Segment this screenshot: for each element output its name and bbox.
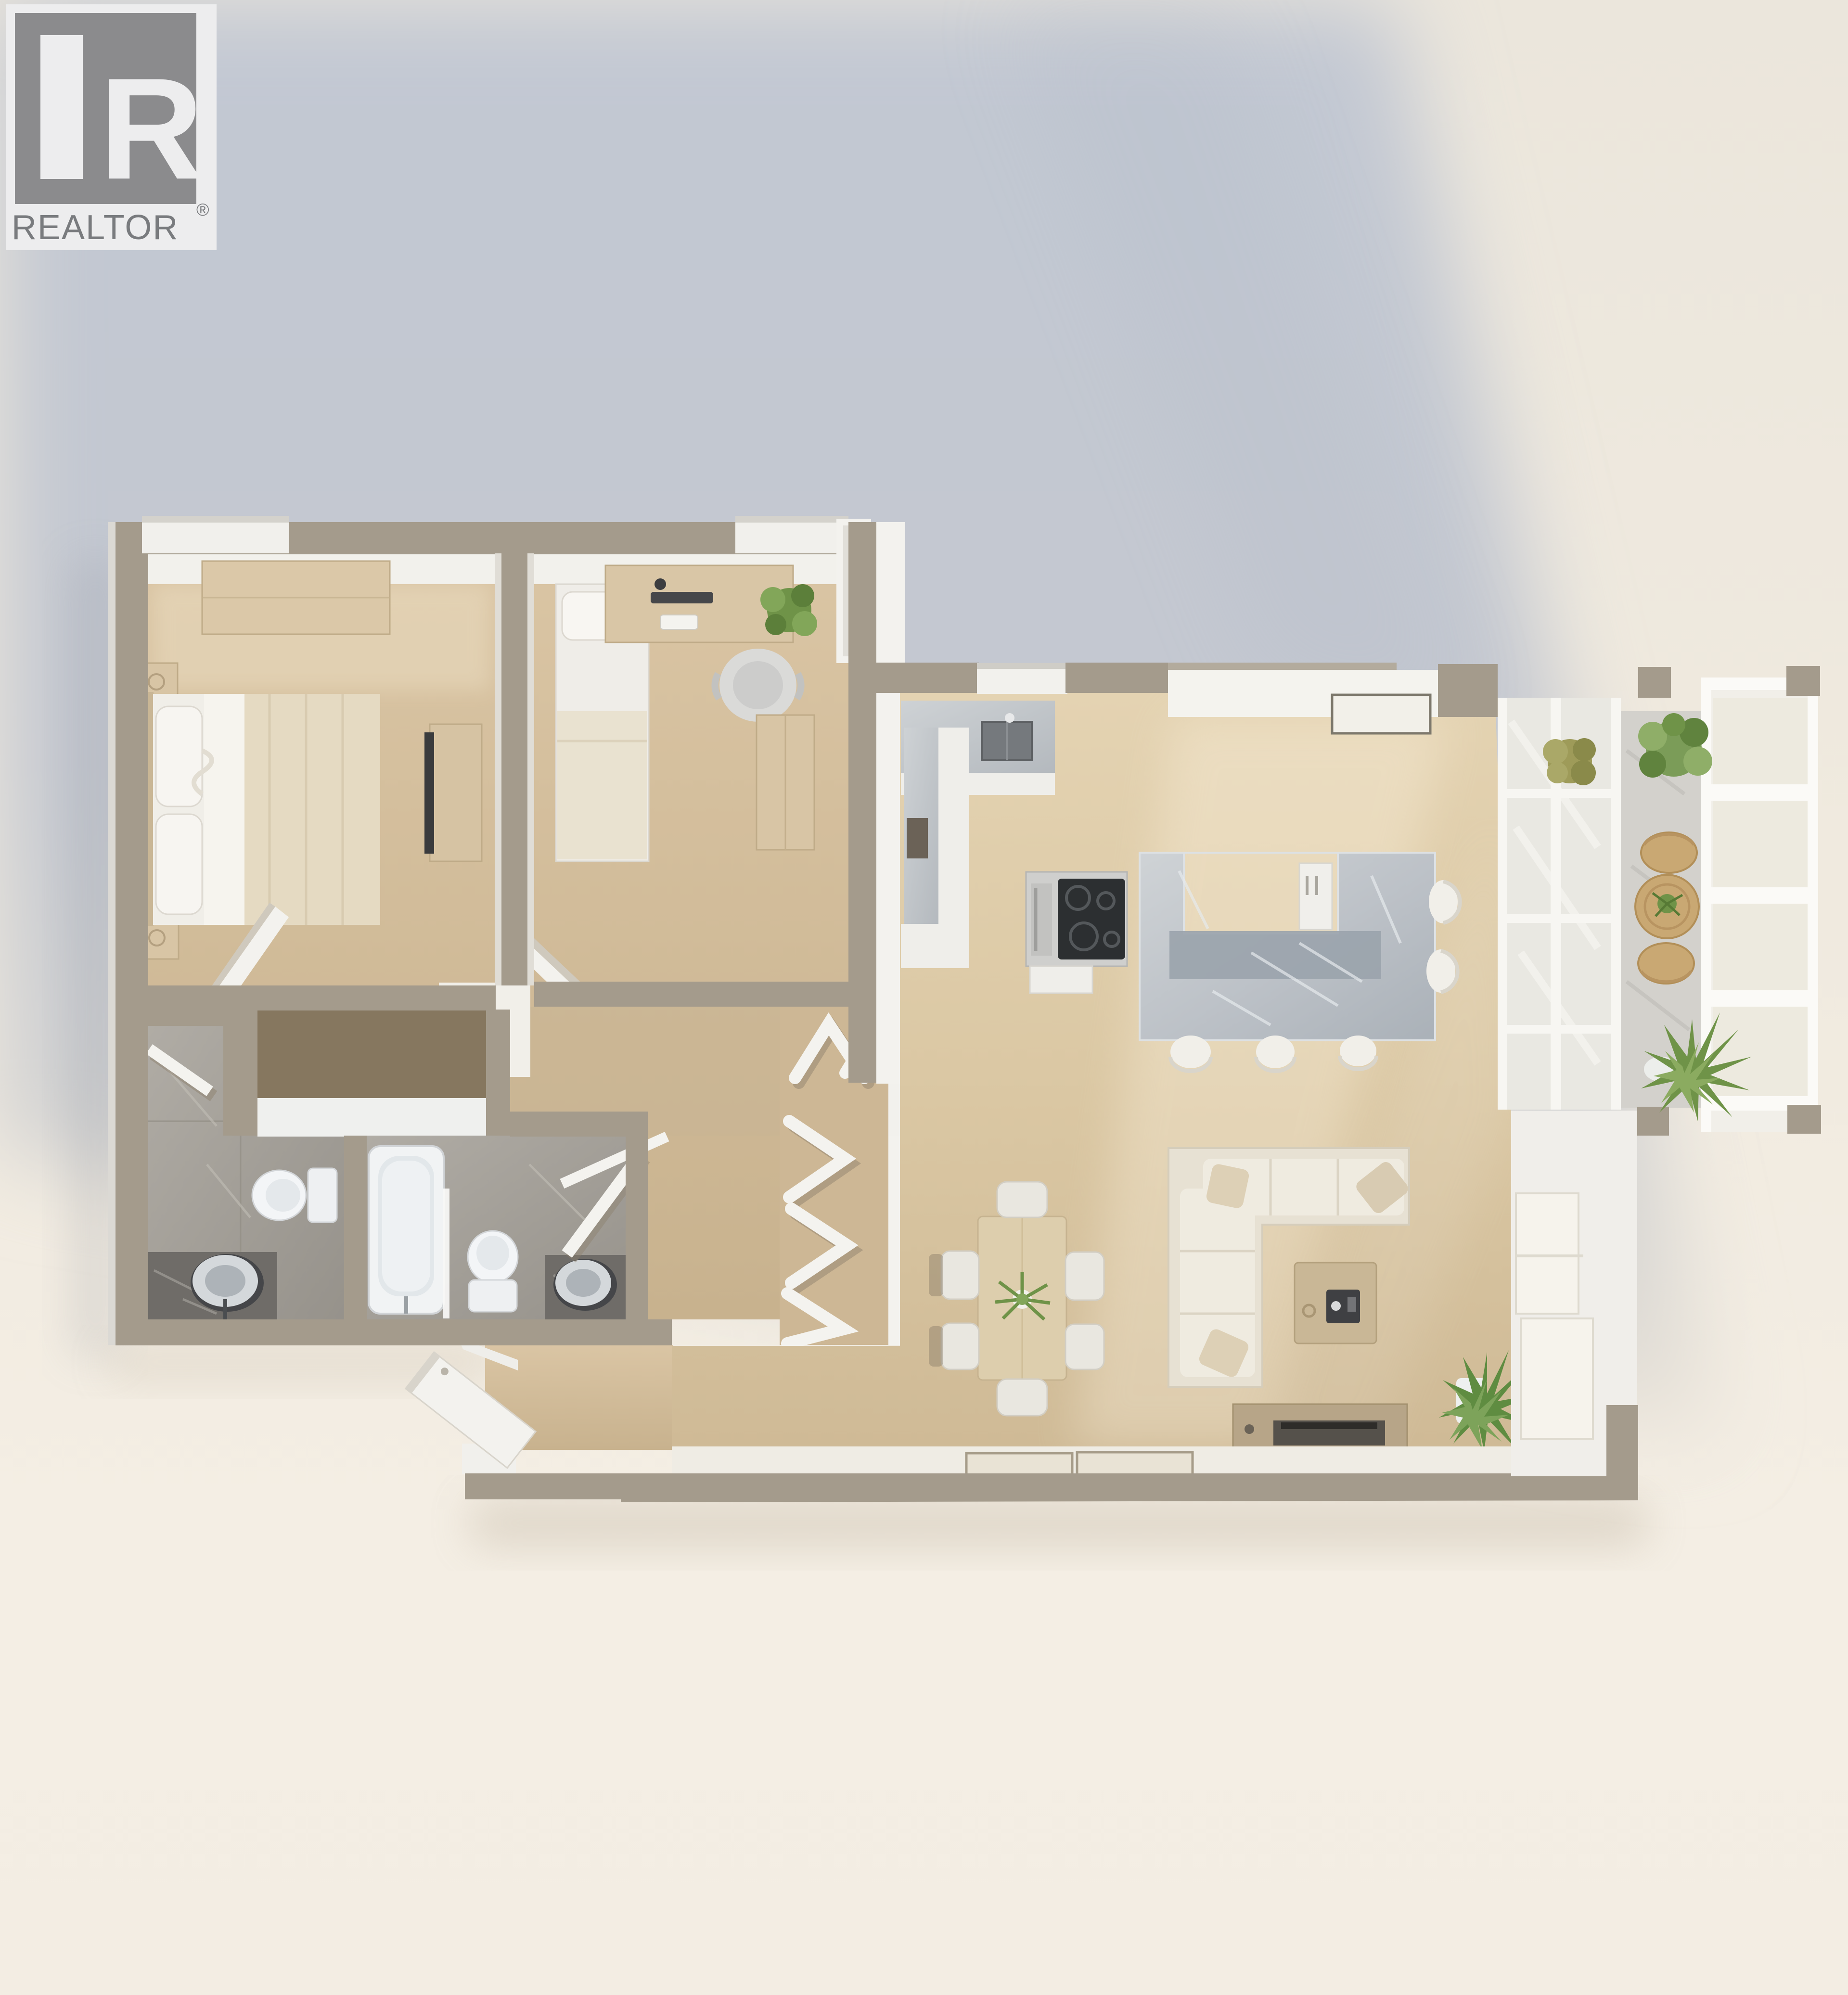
svg-text:®: ®: [196, 200, 209, 219]
svg-text:R: R: [99, 48, 204, 209]
svg-text:REALTOR: REALTOR: [12, 208, 179, 247]
